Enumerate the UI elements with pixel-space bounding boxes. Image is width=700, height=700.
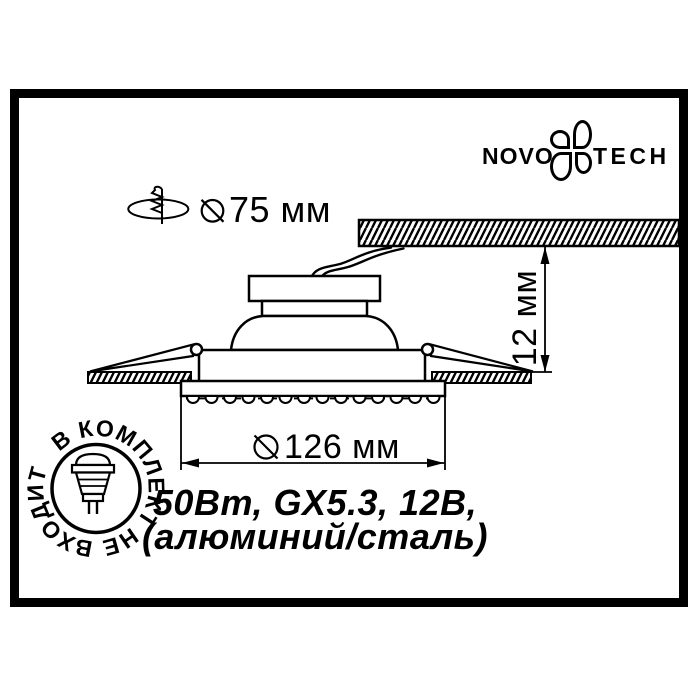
trim-ring: [181, 381, 445, 396]
pivot-left: [191, 344, 202, 355]
depth-label: 12 мм: [508, 248, 548, 388]
diameter-icon-75: [202, 200, 224, 222]
lamp-base: [83, 494, 103, 501]
mr16-lamp-icon: [72, 454, 114, 514]
lamp-reflector: [76, 473, 110, 495]
housing-dome: [231, 316, 398, 350]
flower-petal-bottom-left: [550, 152, 572, 181]
brand-name-left: NOVO: [482, 145, 554, 168]
diameter-icon-126: [255, 436, 278, 459]
lamp-dome: [76, 454, 110, 465]
pivot-right: [422, 344, 433, 355]
fixture-body: [88, 276, 533, 396]
ceiling-panel: [359, 220, 679, 246]
brand-name-right: TECH: [593, 145, 670, 168]
ceiling-cut-left: [88, 372, 191, 383]
flower-petal-bottom-right: [575, 152, 592, 174]
lamp-flange: [72, 465, 114, 473]
power-cable: [312, 248, 404, 278]
mounting-hole-icon: [128, 187, 188, 224]
product-diagram-page: { "brand": { "name_left": "NOVO", "name_…: [0, 0, 700, 700]
visible-diameter-label: 126 мм: [284, 430, 400, 464]
terminal-block: [249, 276, 380, 301]
scallop-edge: [186, 397, 440, 403]
spring-clip-left: [90, 345, 193, 372]
lamp-can: [199, 350, 425, 383]
fixture-technical-drawing: В КОМПЛЕКТ НЕ ВХОДИТ: [0, 0, 700, 700]
cutout-diameter-label: 75 мм: [229, 192, 331, 228]
flower-petal-top-right: [573, 120, 592, 149]
spec-line-2: (алюминий/сталь): [114, 519, 516, 555]
novotech-flower-icon: [550, 120, 592, 181]
hole-ellipse: [128, 200, 188, 219]
lamp-neck: [262, 301, 367, 316]
flower-petal-top-left: [550, 130, 570, 149]
lamp-pins: [89, 501, 97, 514]
